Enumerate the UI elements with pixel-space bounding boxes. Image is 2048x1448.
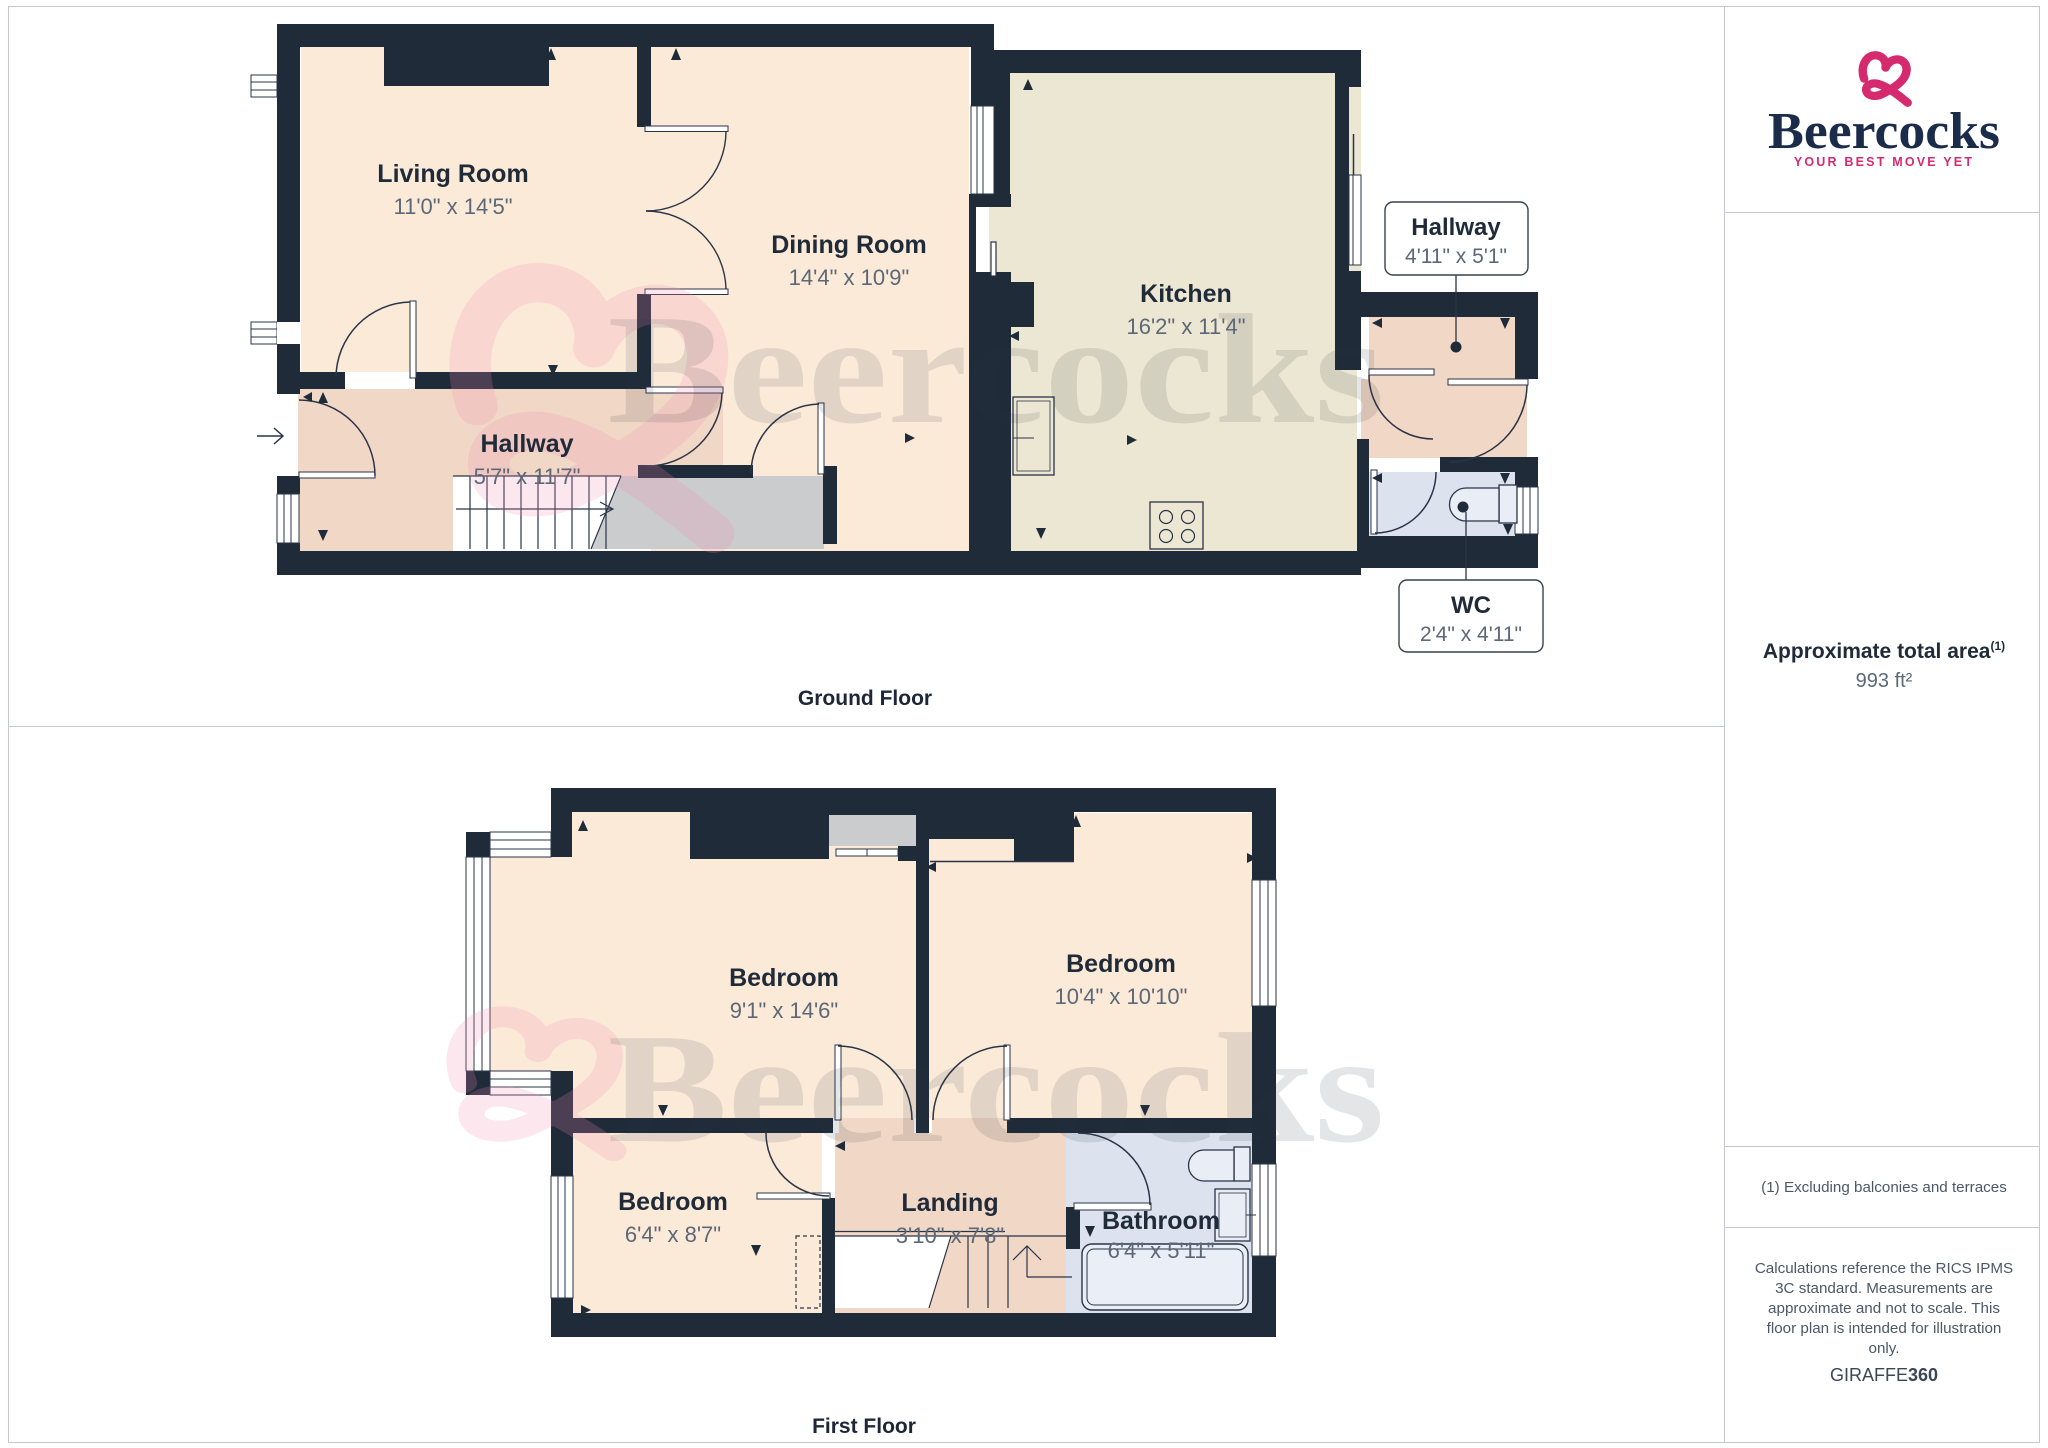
svg-text:10'4" x 10'10": 10'4" x 10'10" bbox=[1055, 984, 1188, 1009]
svg-text:floor plan is intended for ill: floor plan is intended for illustration bbox=[1767, 1320, 2002, 1337]
svg-text:Landing: Landing bbox=[901, 1189, 998, 1217]
svg-text:YOUR BEST MOVE YET: YOUR BEST MOVE YET bbox=[1794, 155, 1974, 169]
svg-text:Bedroom: Bedroom bbox=[1066, 950, 1176, 978]
svg-text:Bedroom: Bedroom bbox=[729, 964, 839, 992]
svg-text:First Floor: First Floor bbox=[812, 1415, 916, 1438]
svg-text:11'0" x 14'5": 11'0" x 14'5" bbox=[393, 194, 512, 219]
svg-text:Hallway: Hallway bbox=[1411, 214, 1501, 241]
svg-text:Hallway: Hallway bbox=[480, 430, 573, 458]
svg-text:Beercocks: Beercocks bbox=[608, 282, 1385, 456]
svg-text:Ground Floor: Ground Floor bbox=[798, 687, 932, 710]
svg-text:9'1" x 14'6": 9'1" x 14'6" bbox=[730, 998, 838, 1023]
svg-text:Beercocks: Beercocks bbox=[608, 1001, 1385, 1175]
svg-text:3'10" x 7'8": 3'10" x 7'8" bbox=[896, 1223, 1004, 1248]
svg-text:(1) Excluding balconies and te: (1) Excluding balconies and terraces bbox=[1761, 1179, 2007, 1196]
svg-text:Calculations reference the RIC: Calculations reference the RICS IPMS bbox=[1755, 1260, 2013, 1277]
svg-text:approximate and not to scale.: approximate and not to scale. This bbox=[1768, 1300, 2000, 1317]
svg-text:993 ft²: 993 ft² bbox=[1856, 670, 1913, 692]
svg-text:Living Room: Living Room bbox=[377, 160, 528, 188]
svg-text:4'11" x 5'1": 4'11" x 5'1" bbox=[1405, 245, 1507, 268]
svg-text:Bedroom: Bedroom bbox=[618, 1188, 728, 1216]
svg-text:Bathroom: Bathroom bbox=[1102, 1207, 1220, 1235]
svg-text:WC: WC bbox=[1451, 592, 1491, 619]
svg-text:only.: only. bbox=[1869, 1340, 1900, 1357]
svg-text:16'2" x 11'4": 16'2" x 11'4" bbox=[1126, 314, 1245, 339]
svg-text:14'4" x 10'9": 14'4" x 10'9" bbox=[789, 265, 910, 290]
svg-text:Approximate total area(1): Approximate total area(1) bbox=[1763, 639, 2005, 663]
svg-text:2'4" x 4'11": 2'4" x 4'11" bbox=[1420, 623, 1522, 646]
svg-text:Beercocks: Beercocks bbox=[1768, 103, 2000, 160]
svg-text:5'7" x 11'7": 5'7" x 11'7" bbox=[474, 464, 581, 489]
svg-text:Dining Room: Dining Room bbox=[771, 231, 927, 259]
svg-text:6'4" x 5'11": 6'4" x 5'11" bbox=[1108, 1238, 1215, 1263]
svg-text:6'4" x 8'7": 6'4" x 8'7" bbox=[625, 1222, 721, 1247]
svg-text:Kitchen: Kitchen bbox=[1140, 280, 1232, 308]
svg-text:3C standard. Measurements are: 3C standard. Measurements are bbox=[1775, 1280, 1993, 1297]
svg-text:GIRAFFE360: GIRAFFE360 bbox=[1830, 1365, 1938, 1385]
